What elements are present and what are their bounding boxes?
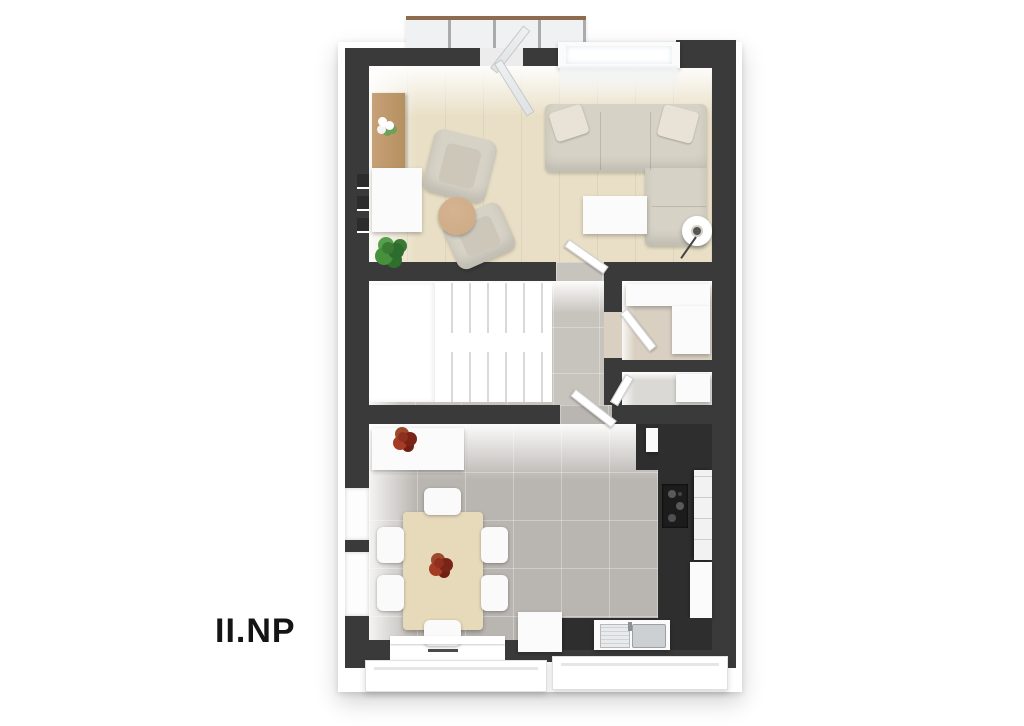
dining-chair xyxy=(377,575,404,611)
armchair-seat xyxy=(438,142,483,190)
wall-living-hall-right xyxy=(604,262,712,281)
wall-top-mid xyxy=(523,48,562,66)
table-centerpiece-plant xyxy=(434,558,444,568)
cooktop xyxy=(662,484,688,528)
dining-window xyxy=(345,488,369,540)
wall-niche xyxy=(357,174,369,189)
exterior-window-sill xyxy=(552,656,728,690)
potted-plant xyxy=(382,242,394,254)
small-room-shelf xyxy=(626,284,710,306)
wall-bottom-left xyxy=(345,640,390,662)
wall-niche xyxy=(357,196,369,211)
low-cabinet xyxy=(372,168,422,232)
floor-plan-render: II.NP xyxy=(0,0,1024,726)
wall-hall-dining-left xyxy=(345,405,560,424)
sofa-seam xyxy=(652,206,706,207)
coffee-table xyxy=(583,196,647,234)
bottom-window-frame xyxy=(390,636,505,644)
wc-fixture xyxy=(676,374,710,402)
stairs-lower-flight xyxy=(435,352,552,402)
dining-chair xyxy=(377,527,404,563)
floor-lamp xyxy=(682,216,712,246)
dining-window xyxy=(345,552,369,616)
floor-level-label: II.NP xyxy=(215,612,345,651)
red-plant xyxy=(398,432,408,442)
small-room-door-threshold xyxy=(604,312,622,358)
wall-right xyxy=(712,48,736,668)
sink-faucet xyxy=(628,622,632,631)
exterior-window-sill xyxy=(365,660,547,692)
stair-landing xyxy=(369,283,435,402)
sofa-seam xyxy=(650,112,651,170)
sideboard xyxy=(372,93,405,169)
living-window-sill xyxy=(560,66,678,98)
stair-winder xyxy=(435,333,552,352)
sofa-seam xyxy=(600,112,601,170)
flower-vase xyxy=(380,120,387,127)
stairs-upper-flight xyxy=(435,283,552,333)
sink-drainer xyxy=(600,624,630,648)
dining-chair xyxy=(424,488,461,515)
dining-chair xyxy=(481,575,508,611)
wall-hall-room-upper xyxy=(604,281,622,312)
wall-hall-dining-right xyxy=(612,405,736,424)
wall-room-divider xyxy=(604,360,736,372)
living-window-pane xyxy=(566,46,672,64)
chair-legs xyxy=(428,649,458,652)
dishwasher-cabinet xyxy=(518,612,562,652)
dining-sideboard xyxy=(372,428,464,470)
sink-basin xyxy=(632,624,666,648)
kitchen-cabinet-fronts xyxy=(694,470,712,560)
round-side-table xyxy=(438,197,476,235)
cooktop-burners xyxy=(668,490,676,498)
dining-chair xyxy=(481,527,508,563)
dining-table xyxy=(403,512,483,630)
tall-kitchen-unit xyxy=(690,562,712,618)
small-room-desk xyxy=(672,306,710,354)
wall-niche xyxy=(357,218,369,233)
